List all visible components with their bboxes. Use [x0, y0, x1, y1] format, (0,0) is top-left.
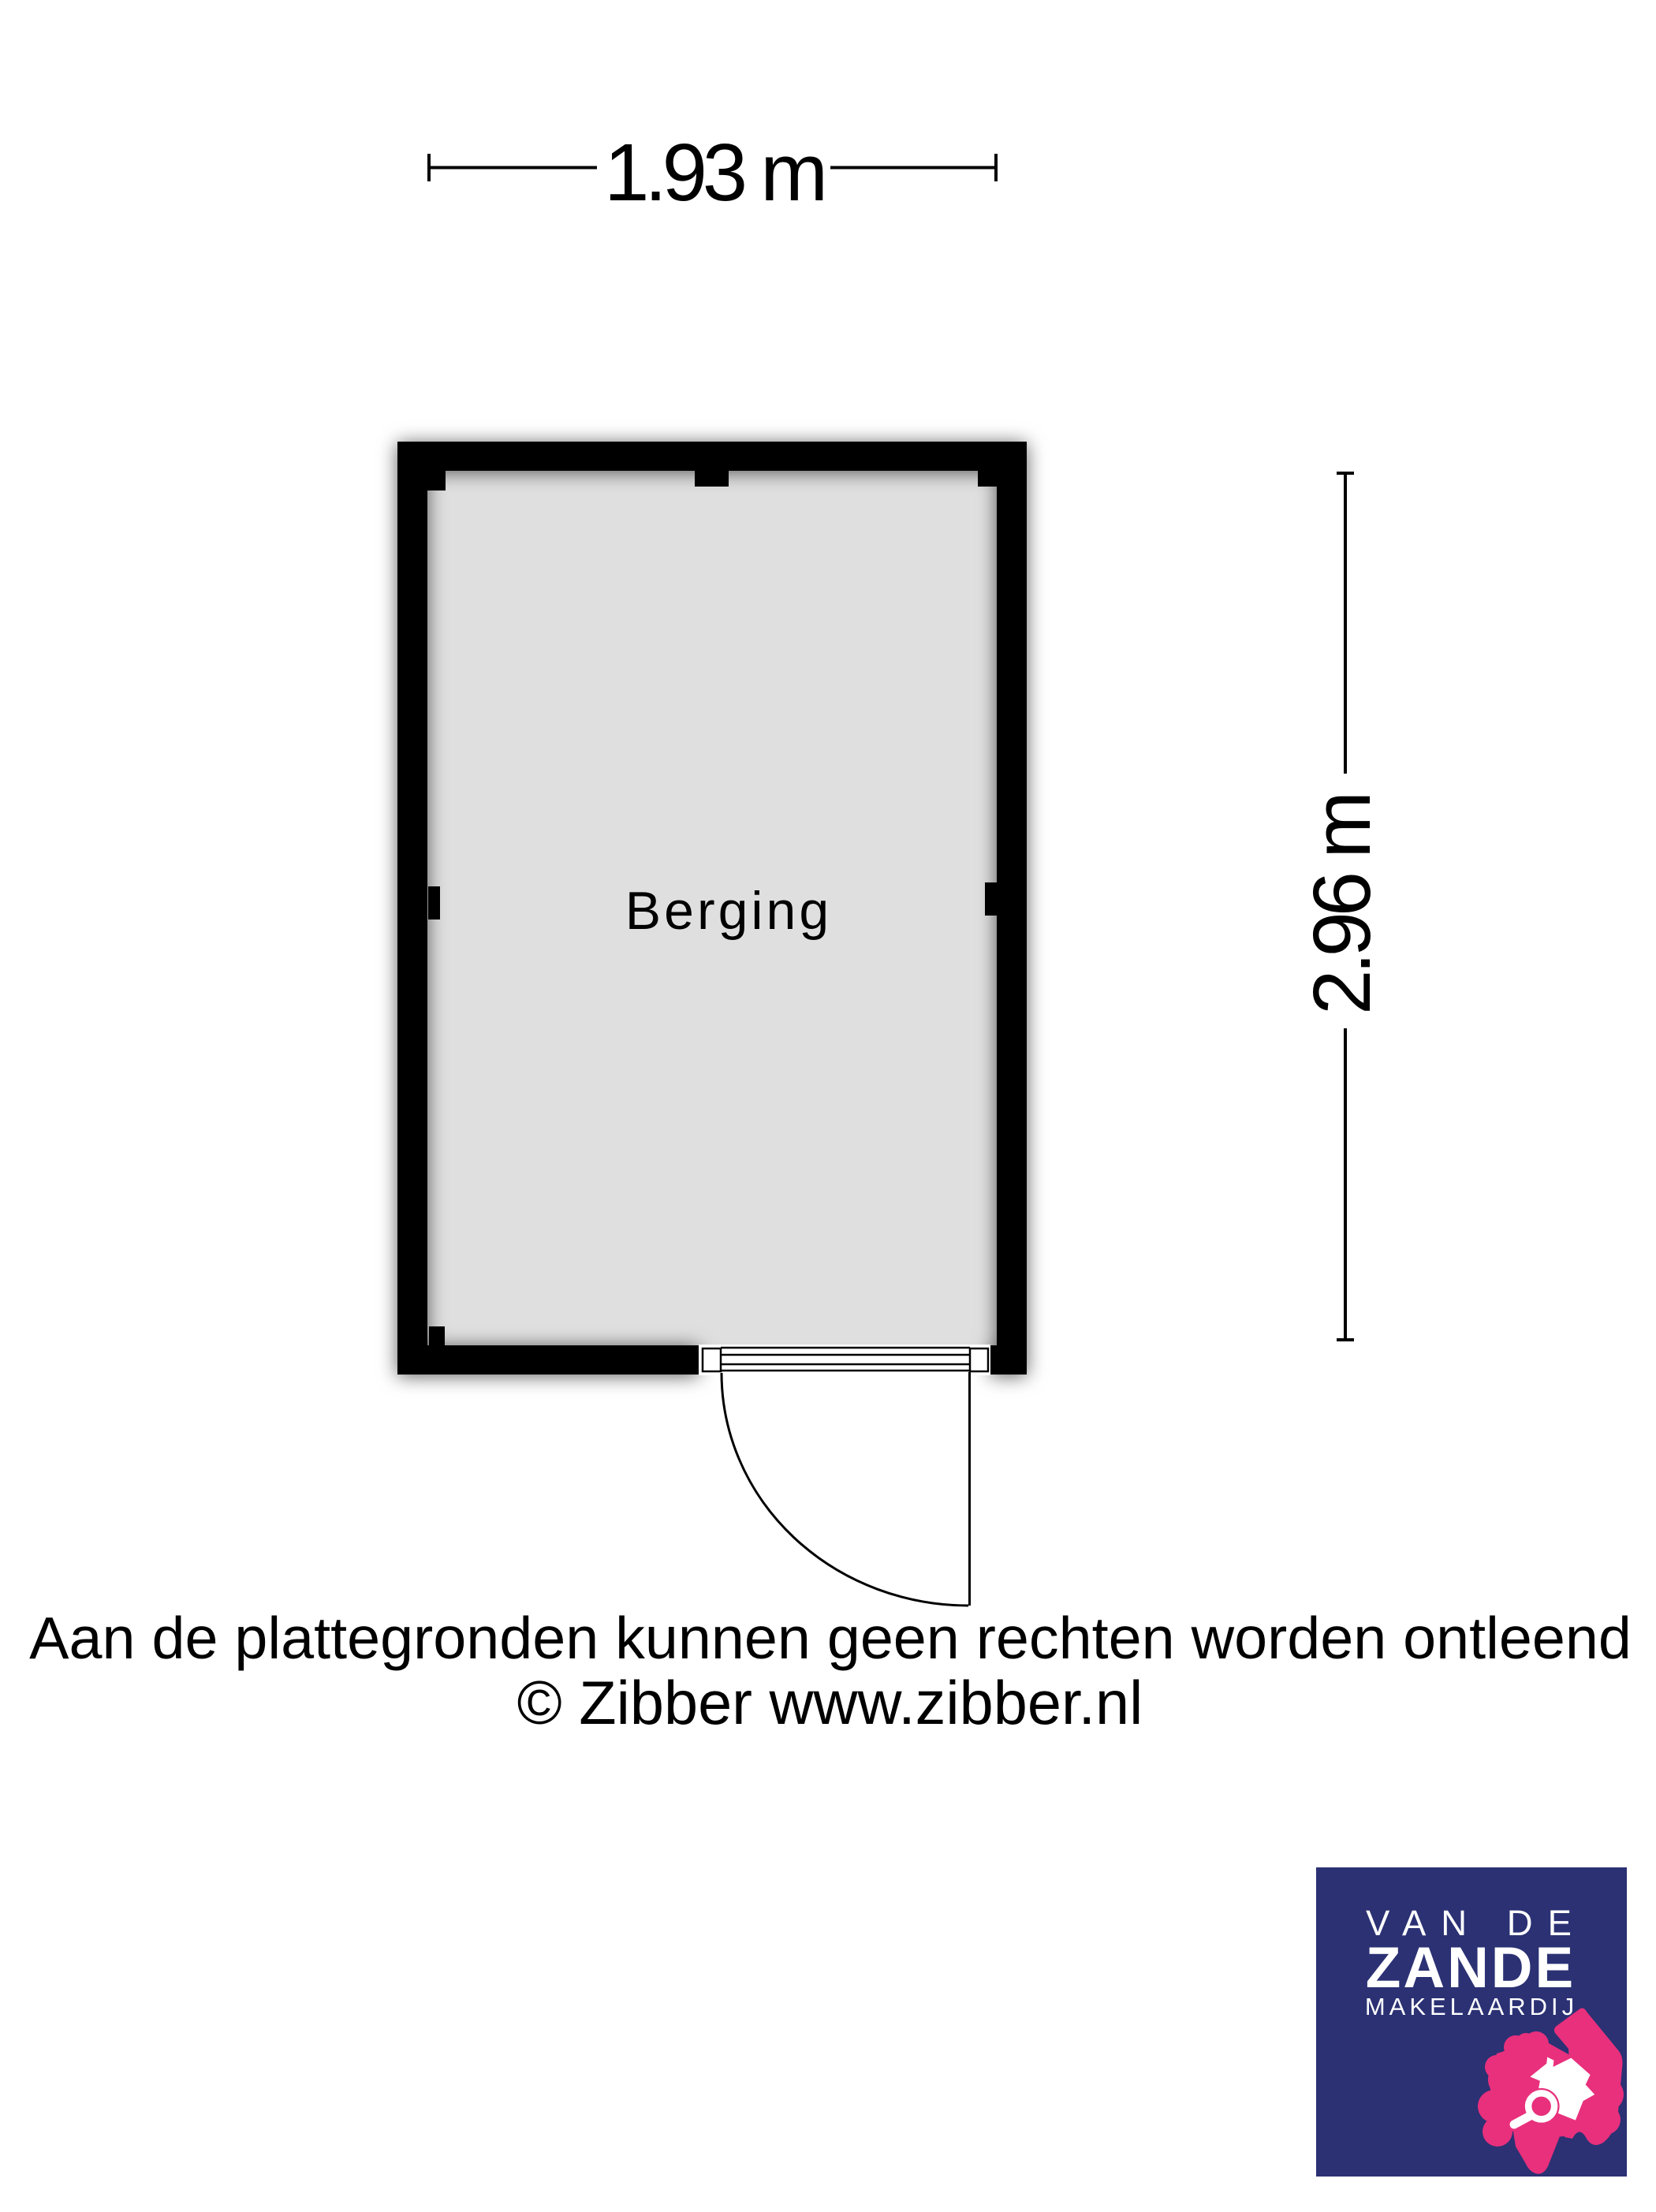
svg-text:1.93 m: 1.93 m — [604, 127, 823, 218]
svg-text:2.96 m: 2.96 m — [1296, 796, 1387, 1015]
svg-text:Aan de plattegronden kunnen ge: Aan de plattegronden kunnen geen rechten… — [29, 1605, 1632, 1671]
svg-text:Berging: Berging — [625, 881, 832, 941]
svg-text:ZANDE: ZANDE — [1366, 1936, 1576, 2000]
svg-text:© Zibber www.zibber.nl: © Zibber www.zibber.nl — [517, 1669, 1143, 1737]
svg-text:MAKELAARDIJ: MAKELAARDIJ — [1365, 1993, 1578, 2020]
